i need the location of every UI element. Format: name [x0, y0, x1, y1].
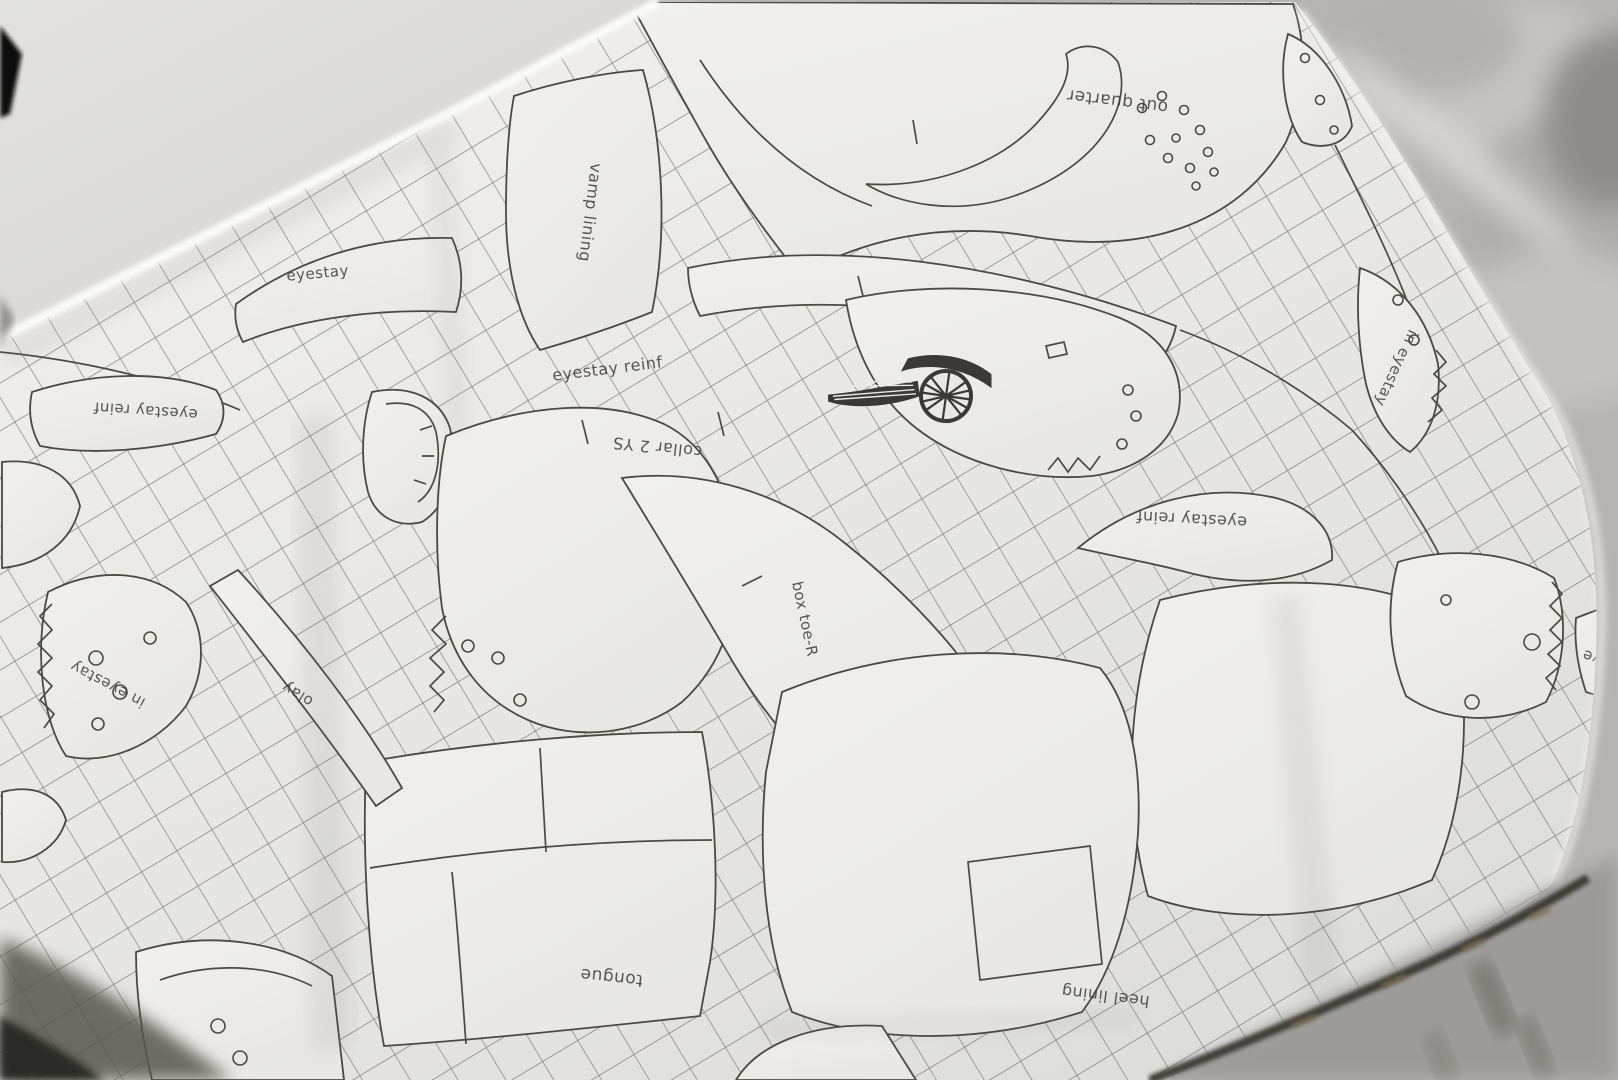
- piece-tongue: [365, 732, 716, 1046]
- piece-heel-lining: [763, 653, 1139, 1036]
- photo-shoebox-pattern-paper: out quarter vamp lining eyestay eyestay …: [0, 0, 1618, 1080]
- photo-canvas: out quarter vamp lining eyestay eyestay …: [0, 0, 1618, 1080]
